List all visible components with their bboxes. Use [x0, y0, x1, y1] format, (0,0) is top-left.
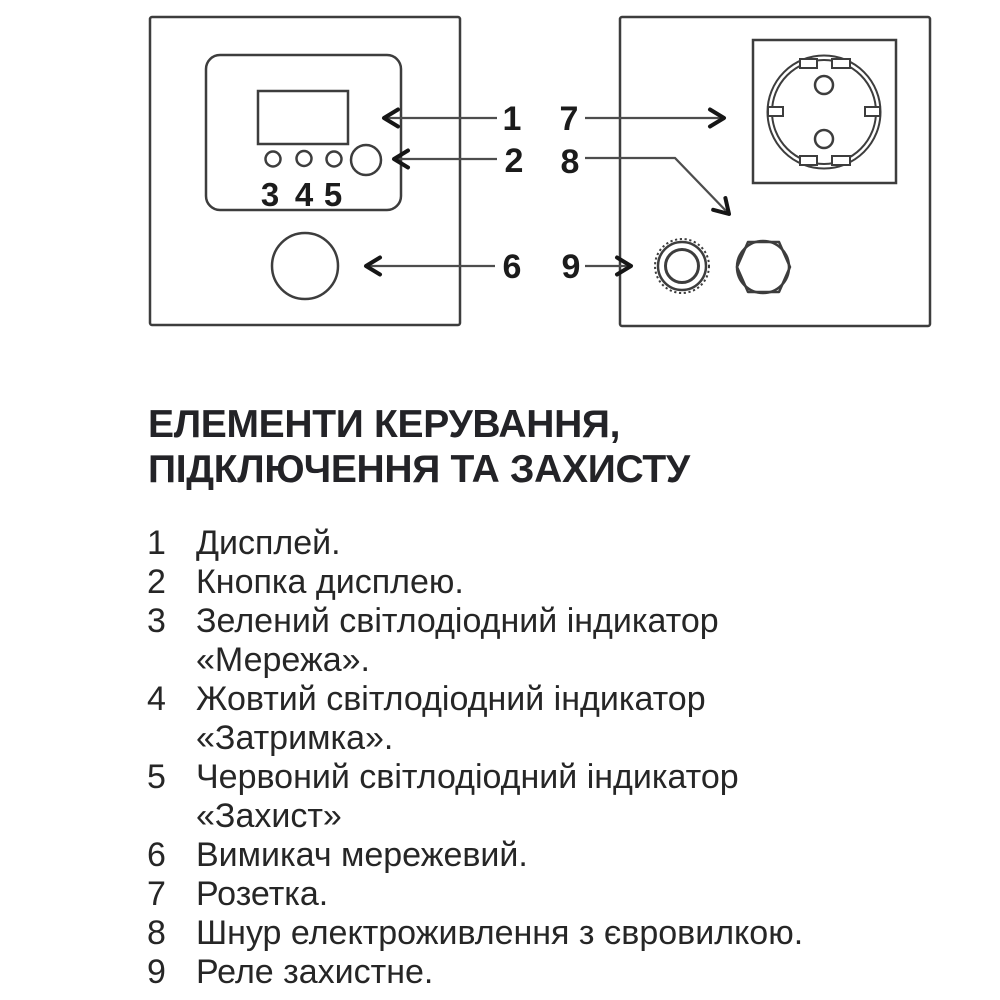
legend-item-number: 6	[147, 836, 196, 875]
legend-item-number: 2	[147, 563, 196, 602]
legend-item-1: 1 Дисплей.	[147, 524, 907, 563]
callout-number-1: 1	[503, 100, 522, 138]
legend-item-number: 9	[147, 953, 196, 992]
legend-item-text: Кнопка дисплею.	[196, 563, 907, 602]
power-cord-gland	[737, 241, 790, 293]
legend-item-number: 7	[147, 875, 196, 914]
legend-item-text: Червоний світлодіодний індикатор «Захист…	[196, 758, 907, 836]
led-yellow-indicator	[297, 151, 312, 166]
power-socket	[753, 40, 896, 183]
device-diagrams: 3 4 5 1 2 6	[0, 0, 1000, 345]
rear-panel-diagram	[620, 17, 930, 326]
legend-item-8: 8 Шнур електроживлення з євровилкою.	[147, 914, 907, 953]
legend-item-2: 2 Кнопка дисплею.	[147, 563, 907, 602]
legend-item-text: Дисплей.	[196, 524, 907, 563]
relay-knurled-edge	[655, 239, 709, 293]
led-label-4: 4	[295, 176, 314, 213]
callout-number-8: 8	[561, 143, 580, 181]
callout-number-9: 9	[562, 248, 581, 286]
relay-center	[666, 250, 699, 283]
protection-relay	[655, 239, 709, 293]
led-green-indicator	[266, 152, 281, 167]
legend-item-5: 5 Червоний світлодіодний індикатор «Захи…	[147, 758, 907, 836]
legend-item-6: 6 Вимикач мережевий.	[147, 836, 907, 875]
legend-list: 1 Дисплей. 2 Кнопка дисплею. 3 Зелений с…	[147, 524, 907, 992]
legend-item-3: 3 Зелений світлодіодний індикатор «Мереж…	[147, 602, 907, 680]
legend-item-7: 7 Розетка.	[147, 875, 907, 914]
legend-item-4: 4 Жовтий світлодіодний індикатор «Затрим…	[147, 680, 907, 758]
socket-pin-hole-top	[815, 76, 833, 94]
legend-item-number: 3	[147, 602, 196, 641]
rear-panel-callout-arrows	[585, 118, 729, 266]
rear-panel-outline	[620, 17, 930, 326]
legend-item-text: Жовтий світлодіодний індикатор «Затримка…	[196, 680, 907, 758]
legend-item-number: 4	[147, 680, 196, 719]
front-panel-outline	[150, 17, 460, 325]
gland-hex-nut	[737, 242, 790, 292]
led-red-indicator	[327, 152, 342, 167]
manual-page: 3 4 5 1 2 6	[0, 0, 1000, 1000]
front-panel-diagram	[150, 17, 460, 325]
legend-item-number: 5	[147, 758, 196, 797]
legend-item-9: 9 Реле захистне.	[147, 953, 907, 992]
callout-arrow-8	[585, 158, 729, 214]
legend-item-text: Реле захистне.	[196, 953, 907, 992]
section-title-line1: ЕЛЕМЕНТИ КЕРУВАННЯ,	[148, 402, 690, 447]
led-label-3: 3	[261, 176, 279, 213]
socket-recess-outer	[768, 56, 881, 169]
legend-item-number: 1	[147, 524, 196, 563]
legend-item-number: 8	[147, 914, 196, 953]
legend-item-text: Шнур електроживлення з євровилкою.	[196, 914, 907, 953]
legend-item-text: Зелений світлодіодний індикатор «Мережа»…	[196, 602, 907, 680]
display-button	[351, 145, 381, 175]
socket-pin-hole-bottom	[815, 130, 833, 148]
callout-number-6: 6	[503, 248, 522, 286]
led-label-5: 5	[324, 176, 342, 213]
legend-item-text: Вимикач мережевий.	[196, 836, 907, 875]
callout-number-2: 2	[505, 142, 524, 180]
display	[258, 91, 348, 144]
callout-number-7: 7	[560, 100, 579, 138]
section-title-line2: ПІДКЛЮЧЕННЯ ТА ЗАХИСТУ	[148, 447, 690, 492]
section-title: ЕЛЕМЕНТИ КЕРУВАННЯ, ПІДКЛЮЧЕННЯ ТА ЗАХИС…	[148, 402, 690, 492]
legend-item-text: Розетка.	[196, 875, 907, 914]
power-switch-knob	[272, 233, 338, 299]
front-panel-callout-arrows	[366, 118, 497, 266]
